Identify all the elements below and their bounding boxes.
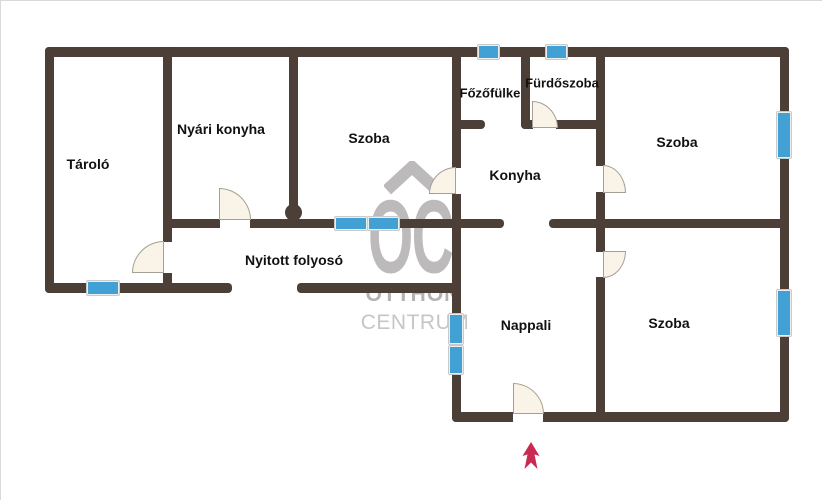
room-label-fozofulke: Főzőfülke: [460, 86, 521, 101]
room-label-nyari-konyha: Nyári konyha: [177, 121, 265, 137]
wall-szoba-divider-right: [596, 47, 605, 422]
wall-nyarikonyha-szoba-divider: [289, 47, 298, 213]
wall-middle-horizontal-right: [549, 219, 789, 228]
wall-taralo-bottom: [45, 283, 232, 293]
watermark-logo: OC: [368, 179, 452, 298]
wall-fozofulke-bottom-stub: [452, 120, 485, 129]
wall-end-knob: [285, 204, 302, 221]
door-arc-taralo: [132, 241, 164, 273]
room-label-taralo: Tároló: [67, 156, 110, 172]
window-marker-furdoszoba-top: [546, 45, 567, 59]
door-gap-nyarikonyha: [220, 219, 250, 228]
room-label-szoba-bottom-right: Szoba: [648, 315, 689, 331]
room-label-nyitott-folyoso: Nyitott folyosó: [245, 252, 343, 268]
room-label-konyha: Konyha: [489, 167, 540, 183]
window-marker-nappali-left-2: [449, 346, 463, 374]
room-label-szoba-top-left: Szoba: [348, 130, 389, 146]
door-arc-nappali-szoba: [603, 251, 626, 278]
window-marker-nappali-left-1: [449, 314, 463, 344]
wall-outer-left: [45, 47, 54, 293]
wall-top: [45, 47, 789, 57]
window-marker-szoba-right-bottom: [777, 290, 791, 336]
window-marker-szoba-right-top: [777, 112, 791, 158]
window-marker-szoba-folyoso-1: [335, 217, 367, 230]
window-marker-fozofulke-top: [478, 45, 499, 59]
wall-bottom: [452, 412, 789, 422]
door-arc-konyha-szoba: [603, 165, 626, 193]
door-arc-entrance: [513, 383, 544, 414]
door-gap-taralo: [163, 242, 172, 273]
room-label-furdoszoba: Fürdőszoba: [525, 76, 599, 91]
wall-folyoso-bottom: [297, 283, 460, 293]
wall-outer-right: [780, 47, 789, 422]
door-arc-furdoszoba: [532, 101, 558, 128]
room-label-nappali: Nappali: [501, 317, 552, 333]
window-marker-szoba-folyoso-2: [368, 217, 399, 230]
door-arc-nyarikonyha: [219, 188, 251, 220]
room-label-szoba-top-right: Szoba: [656, 134, 697, 150]
entrance-arrow-icon: [519, 439, 543, 472]
window-marker-taralo-bottom: [87, 281, 119, 295]
floor-plan: OC OTTHON CENTRUM Tároló Nyári konyha Sz…: [0, 0, 822, 500]
